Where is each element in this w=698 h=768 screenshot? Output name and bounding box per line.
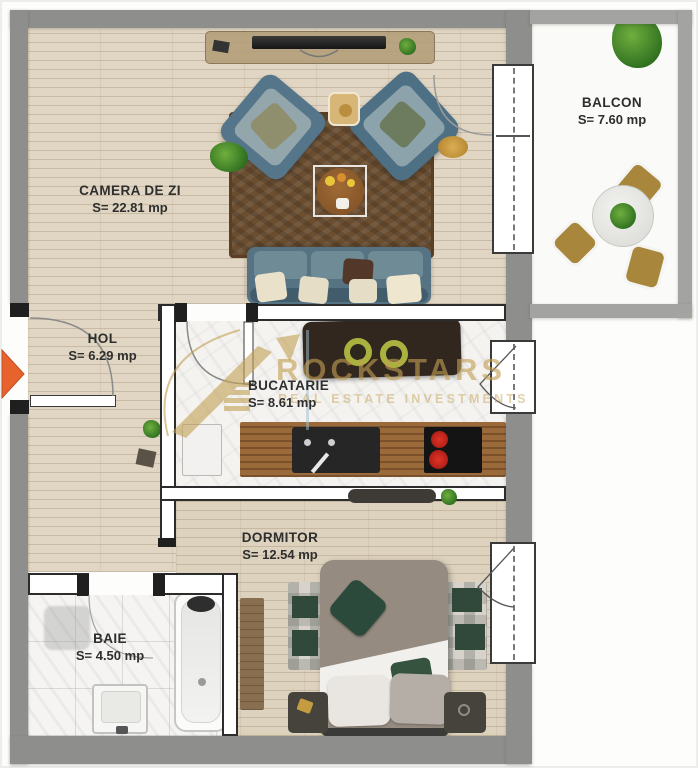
sofa <box>247 247 431 304</box>
room-area-hall: S= 6.29 mp <box>30 348 175 365</box>
gold-tray <box>438 136 468 158</box>
wardrobe <box>240 598 264 710</box>
rug-green-square-1 <box>292 596 318 618</box>
rug-green-square-3 <box>452 588 482 612</box>
bathtub-basin <box>181 599 221 723</box>
cooktop <box>424 427 482 473</box>
hall-decor <box>136 448 157 467</box>
sink-knob-2 <box>328 439 335 446</box>
flowers-3 <box>347 179 355 187</box>
room-area-bedroom: S= 12.54 mp <box>210 547 350 564</box>
room-area-bathroom: S= 4.50 mp <box>40 648 180 665</box>
kitchen-sink <box>292 427 380 473</box>
wall-right-3 <box>506 412 532 544</box>
sofa-pillow-2 <box>298 276 330 305</box>
floor-plan: ROCKSTARS REAL ESTATE INVESTMENTS CAMERA… <box>0 0 698 768</box>
wall-right-4 <box>506 664 532 764</box>
washbasin-bowl <box>101 691 141 723</box>
flowers <box>325 176 335 186</box>
living-plant <box>210 142 248 172</box>
kitchen-door-jamb-right <box>246 303 258 322</box>
wall-left-lower <box>10 414 28 764</box>
window-sash-line <box>513 68 515 250</box>
bedroom-window <box>490 542 536 664</box>
flowers-2 <box>337 173 346 182</box>
entrance-jamb-bottom <box>10 400 29 414</box>
bathtub-headrest <box>187 596 215 612</box>
tv <box>252 36 386 49</box>
room-name-living: CAMERA DE ZI <box>55 182 205 200</box>
wall-top <box>10 10 530 28</box>
entrance-jamb-top <box>10 303 29 317</box>
fridge <box>182 424 222 476</box>
bathtub-drain <box>198 678 206 686</box>
nightstand-right <box>444 692 486 733</box>
room-label-balcony: BALCON S= 7.60 mp <box>547 94 677 128</box>
rug-green-square-4 <box>455 624 485 650</box>
washbasin <box>92 684 148 734</box>
burner-1 <box>431 431 448 448</box>
room-name-kitchen: BUCATARIE <box>248 377 358 395</box>
side-table <box>328 92 360 126</box>
room-area-balcony: S= 7.60 mp <box>547 112 677 129</box>
coffee-table <box>317 168 364 215</box>
wall-bottom <box>10 736 530 764</box>
balcony-wall-right <box>678 10 692 318</box>
room-label-bedroom: DORMITOR S= 12.54 mp <box>210 529 350 563</box>
sink-knob-1 <box>304 439 311 446</box>
wall-bathroom-bedroom <box>222 573 238 736</box>
burner-2 <box>429 450 448 469</box>
kitchen-door-jamb-left <box>175 303 187 322</box>
nightstand-left-decor <box>296 698 313 714</box>
room-name-bathroom: BAIE <box>40 630 180 648</box>
hall-plant <box>143 420 161 438</box>
wall-living-kitchen <box>246 304 506 321</box>
room-label-kitchen: BUCATARIE S= 8.61 mp <box>248 377 358 411</box>
room-name-hall: HOL <box>30 330 175 348</box>
wall-right-1 <box>506 10 532 66</box>
bed-pillow-gray <box>389 673 451 725</box>
room-area-kitchen: S= 8.61 mp <box>248 395 358 412</box>
bed <box>320 560 448 734</box>
dresser <box>348 489 436 503</box>
bathtub <box>174 592 228 732</box>
sofa-pillow-4 <box>386 274 422 305</box>
sofa-pillow-1 <box>254 271 288 303</box>
console-plant <box>399 38 416 55</box>
bed-footboard <box>322 728 448 736</box>
nightstand-left <box>288 692 328 733</box>
room-name-balcony: BALCON <box>547 94 677 112</box>
nightstand-right-handle <box>458 704 470 716</box>
room-label-hall: HOL S= 6.29 mp <box>30 330 175 364</box>
balcony-door-window <box>492 64 534 254</box>
window-sash-line <box>513 546 515 660</box>
dresser-plant <box>441 489 457 505</box>
bedroom-door-jamb <box>158 538 176 547</box>
balcony-wall-bottom <box>530 304 692 318</box>
bed-green-pillow-top <box>327 577 389 639</box>
rug-green-square-2 <box>292 630 318 656</box>
room-name-bedroom: DORMITOR <box>210 529 350 547</box>
sink-faucet <box>311 453 329 474</box>
entrance-door-leaf <box>30 395 116 407</box>
bed-pillow-white <box>327 675 391 727</box>
sofa-pillow-3 <box>349 279 377 303</box>
room-label-bathroom: BAIE S= 4.50 mp <box>40 630 180 664</box>
door-window-divider <box>496 135 530 137</box>
room-area-living: S= 22.81 mp <box>55 200 205 217</box>
plate <box>336 198 349 209</box>
washbasin-faucet <box>116 726 128 734</box>
bathroom-door-jamb-left <box>77 574 89 596</box>
wall-right-2 <box>506 254 532 342</box>
room-label-living: CAMERA DE ZI S= 22.81 mp <box>55 182 205 216</box>
wall-left-upper <box>10 10 28 303</box>
balcony-wall-top <box>530 10 692 24</box>
bathroom-door-jamb-right <box>153 574 165 596</box>
balcony-table-plant <box>610 203 636 229</box>
entrance-arrow <box>2 350 24 398</box>
side-table-decor <box>339 104 352 117</box>
